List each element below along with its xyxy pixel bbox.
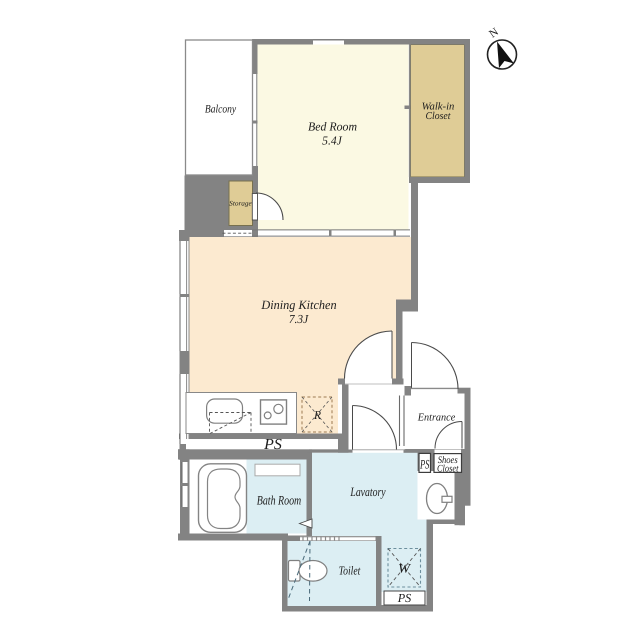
svg-text:W: W <box>398 561 411 576</box>
svg-text:Balcony: Balcony <box>205 104 237 116</box>
svg-text:PS: PS <box>419 456 429 471</box>
svg-text:PS: PS <box>397 591 411 605</box>
svg-text:R: R <box>313 408 322 422</box>
svg-text:5.4J: 5.4J <box>322 134 342 148</box>
svg-text:Storage: Storage <box>229 200 252 208</box>
svg-text:Bath Room: Bath Room <box>257 493 302 508</box>
svg-text:Lavatory: Lavatory <box>350 485 386 499</box>
svg-text:7.3J: 7.3J <box>289 312 309 326</box>
svg-text:Closet: Closet <box>426 111 452 122</box>
svg-text:Toilet: Toilet <box>339 564 361 578</box>
svg-text:Bed Room: Bed Room <box>308 120 357 134</box>
svg-text:Entrance: Entrance <box>417 412 456 424</box>
svg-text:Closet: Closet <box>437 463 459 474</box>
svg-text:Dining Kitchen: Dining Kitchen <box>260 298 336 312</box>
svg-text:PS: PS <box>263 436 282 453</box>
